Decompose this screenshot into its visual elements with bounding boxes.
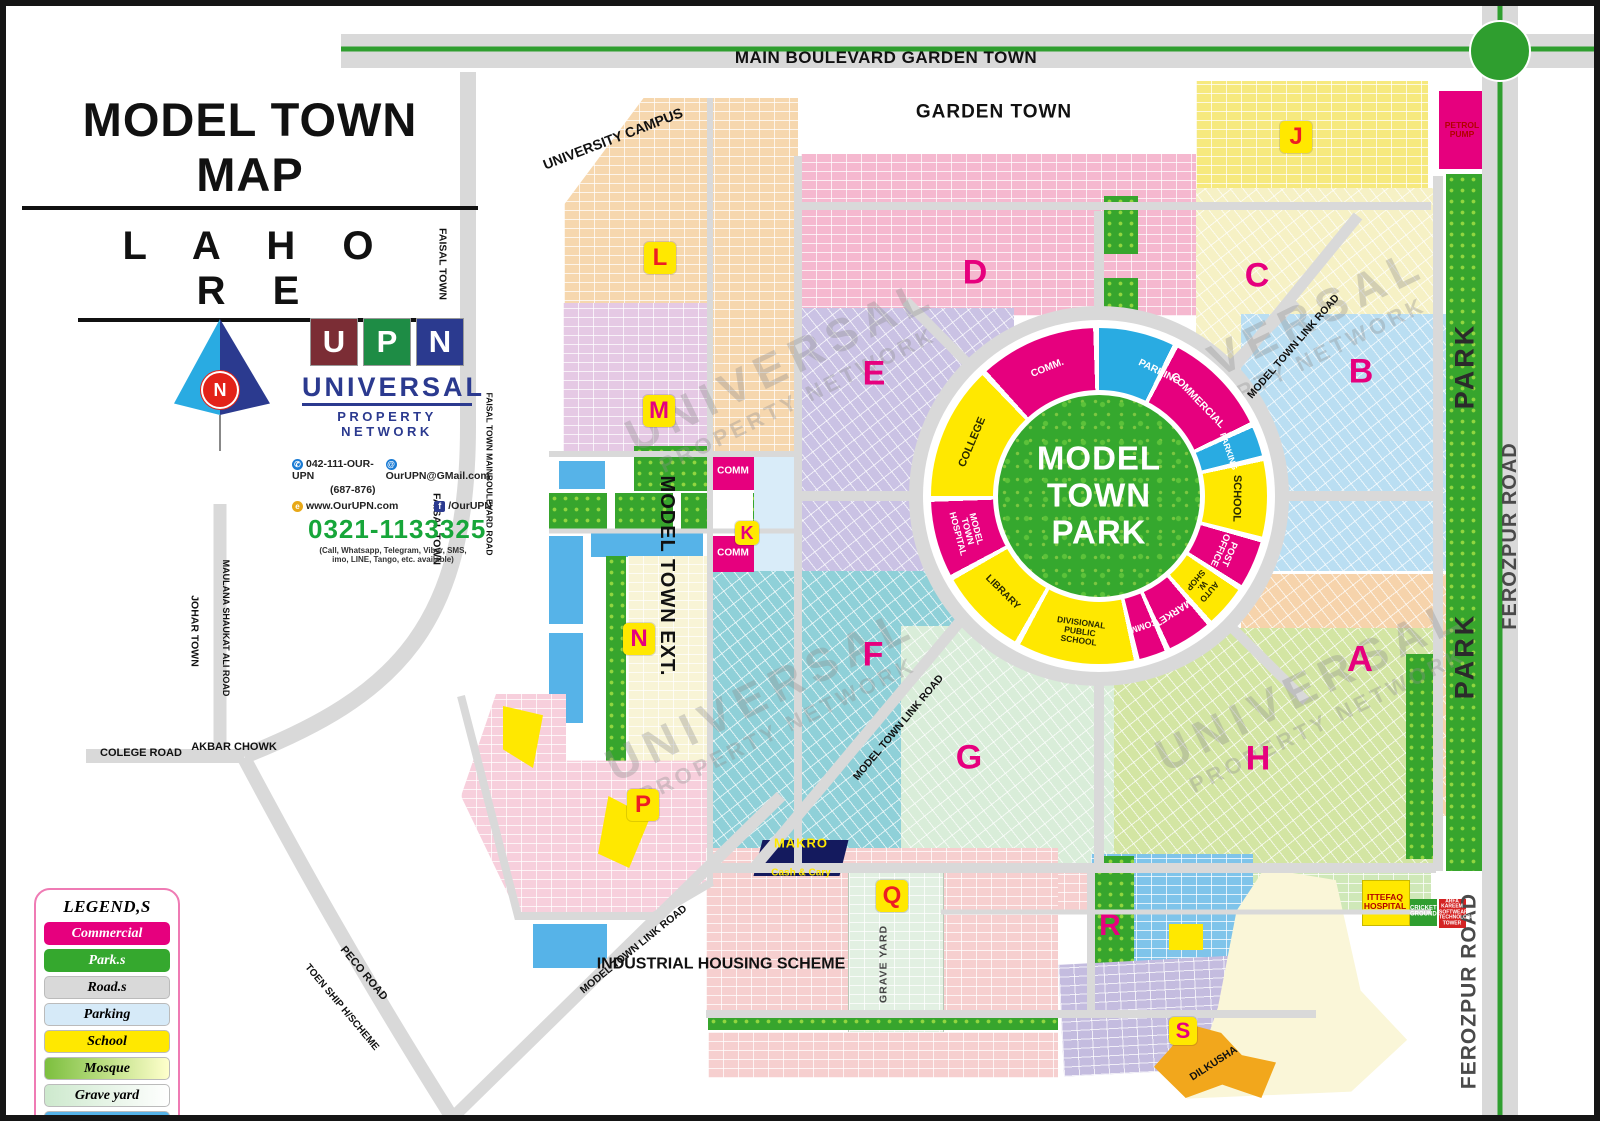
- ferozpur-road-label: FEROZPUR ROAD: [1500, 442, 1522, 629]
- park-title: MODEL TOWN PARK: [1037, 441, 1161, 552]
- model-town-ext-label: MODEL TOWN EXT.: [655, 476, 677, 677]
- legend-item-school: School: [44, 1030, 170, 1053]
- legend-title: LEGEND,S: [44, 897, 170, 917]
- makro-label: MAKRO Cash & Cary: [771, 820, 830, 897]
- block-letter-n: N: [623, 623, 655, 655]
- main-boulevard-label: MAIN BOULEVARD GARDEN TOWN: [735, 49, 1037, 67]
- petrol-pump-label: PETROL PUMP: [1445, 121, 1479, 139]
- compass-stem: [219, 415, 221, 451]
- north-compass: N: [168, 311, 278, 451]
- legend-item-parking: Parking: [44, 1003, 170, 1026]
- north-label: N: [214, 380, 227, 401]
- johar-town-label: JOHAR TOWN: [188, 595, 199, 667]
- globe-icon: e: [292, 501, 303, 512]
- page-subtitle: L A H O R E: [78, 224, 422, 322]
- facebook-icon: f: [434, 501, 445, 512]
- block-letter-q: Q: [876, 880, 908, 912]
- block-letter-d: D: [963, 254, 988, 293]
- block-letter-h: H: [1246, 740, 1271, 779]
- email-row: @OurUPN@GMail.com: [386, 458, 492, 482]
- mobile-note: (Call, Whatsapp, Telegram, Viber, SMS, i…: [298, 546, 488, 564]
- ittefaq-hospital-label: ITTEFAQ HOSPITAL: [1364, 893, 1406, 911]
- park-strip-label: PARK: [1450, 613, 1479, 700]
- block-letter-l: L: [644, 242, 676, 274]
- legend-item-oht: O.h.t: [44, 1111, 170, 1121]
- block-letter-f: F: [863, 636, 884, 675]
- website-row: ewww.OurUPN.com: [292, 500, 398, 512]
- kalma-chowk-circle: [1470, 21, 1530, 81]
- legend: LEGEND,S Commercial Park.s Road.s Parkin…: [34, 888, 180, 1121]
- industrial-housing-label: INDUSTRIAL HOUSING SCHEME: [597, 955, 846, 972]
- title-panel: MODEL TOWN MAP L A H O R E: [22, 92, 478, 322]
- email-icon: @: [386, 459, 397, 470]
- comm-label: COMM: [717, 549, 749, 560]
- upn-logo: U P N UNIVERSAL PROPERTY NETWORK: [302, 318, 472, 439]
- block-letter-s: S: [1169, 1017, 1197, 1045]
- phone-icon: ✆: [292, 459, 303, 470]
- college-road-label: COLEGE ROAD: [100, 748, 182, 760]
- page-title: MODEL TOWN MAP: [22, 92, 478, 210]
- block-letter-b: B: [1349, 353, 1374, 392]
- legend-item-graveyard: Grave yard: [44, 1084, 170, 1107]
- website[interactable]: www.OurUPN.com: [306, 500, 398, 512]
- makro-sub: Cash & Cary: [771, 868, 830, 879]
- legend-item-commercial: Commercial: [44, 922, 170, 945]
- makro-name: MAKRO: [771, 837, 830, 851]
- block-letter-j: J: [1280, 121, 1312, 153]
- legend-item-parks: Park.s: [44, 949, 170, 972]
- contact-block: ✆042-111-OUR-UPN @OurUPN@GMail.com (687-…: [292, 458, 492, 512]
- cricket-ground-label: CRICKET GROUND: [1410, 906, 1436, 919]
- block-letter-g: G: [956, 739, 982, 778]
- model-town-map-page: UNIVERSAL PROPERTY NETWORK UNIVERSAL PRO…: [0, 0, 1600, 1121]
- facebook-row: f/OurUPN: [434, 500, 492, 512]
- akbar-chowk-label: AKBAR CHOWK: [191, 742, 277, 754]
- logo-letter-u: U: [310, 318, 358, 366]
- arfa-tower-label: ARFA KAREEM SOFTWEAR TECHNOLOGIES TOWER: [1439, 900, 1465, 927]
- block-letter-a: A: [1347, 638, 1373, 680]
- legend-item-roads: Road.s: [44, 976, 170, 999]
- phone-uan: 042-111-OUR-UPN: [292, 458, 374, 482]
- mobile-number: 0321-1133325: [308, 514, 486, 545]
- logo-letter-p: P: [363, 318, 411, 366]
- comm-label: COMM: [717, 467, 749, 478]
- block-letter-k: K: [735, 521, 759, 545]
- block-letter-p: P: [627, 789, 659, 821]
- grave-yard-label: GRAVE YARD: [878, 925, 889, 1003]
- logo-name: UNIVERSAL: [302, 372, 472, 406]
- logo-tagline: PROPERTY NETWORK: [302, 409, 472, 439]
- ring-label-school: SCHOOL: [1230, 475, 1242, 522]
- garden-town-label: GARDEN TOWN: [916, 103, 1072, 124]
- park-strip-label: PARK: [1450, 323, 1479, 410]
- email[interactable]: OurUPN@GMail.com: [386, 470, 490, 482]
- block-letter-e: E: [863, 355, 886, 394]
- block-letter-r: R: [1099, 909, 1121, 943]
- phone-uan-alt: (687-876): [330, 484, 492, 496]
- facebook-handle[interactable]: /OurUPN: [448, 500, 492, 512]
- logo-letter-n: N: [416, 318, 464, 366]
- maulana-shaukat-ali-road-label: MAULANA SHAUKAT ALI ROAD: [220, 560, 230, 697]
- phone-row: ✆042-111-OUR-UPN: [292, 458, 386, 482]
- block-letter-c: C: [1245, 257, 1270, 296]
- legend-item-mosque: Mosque: [44, 1057, 170, 1080]
- block-letter-m: M: [643, 395, 675, 427]
- compass-north-badge: N: [203, 373, 237, 407]
